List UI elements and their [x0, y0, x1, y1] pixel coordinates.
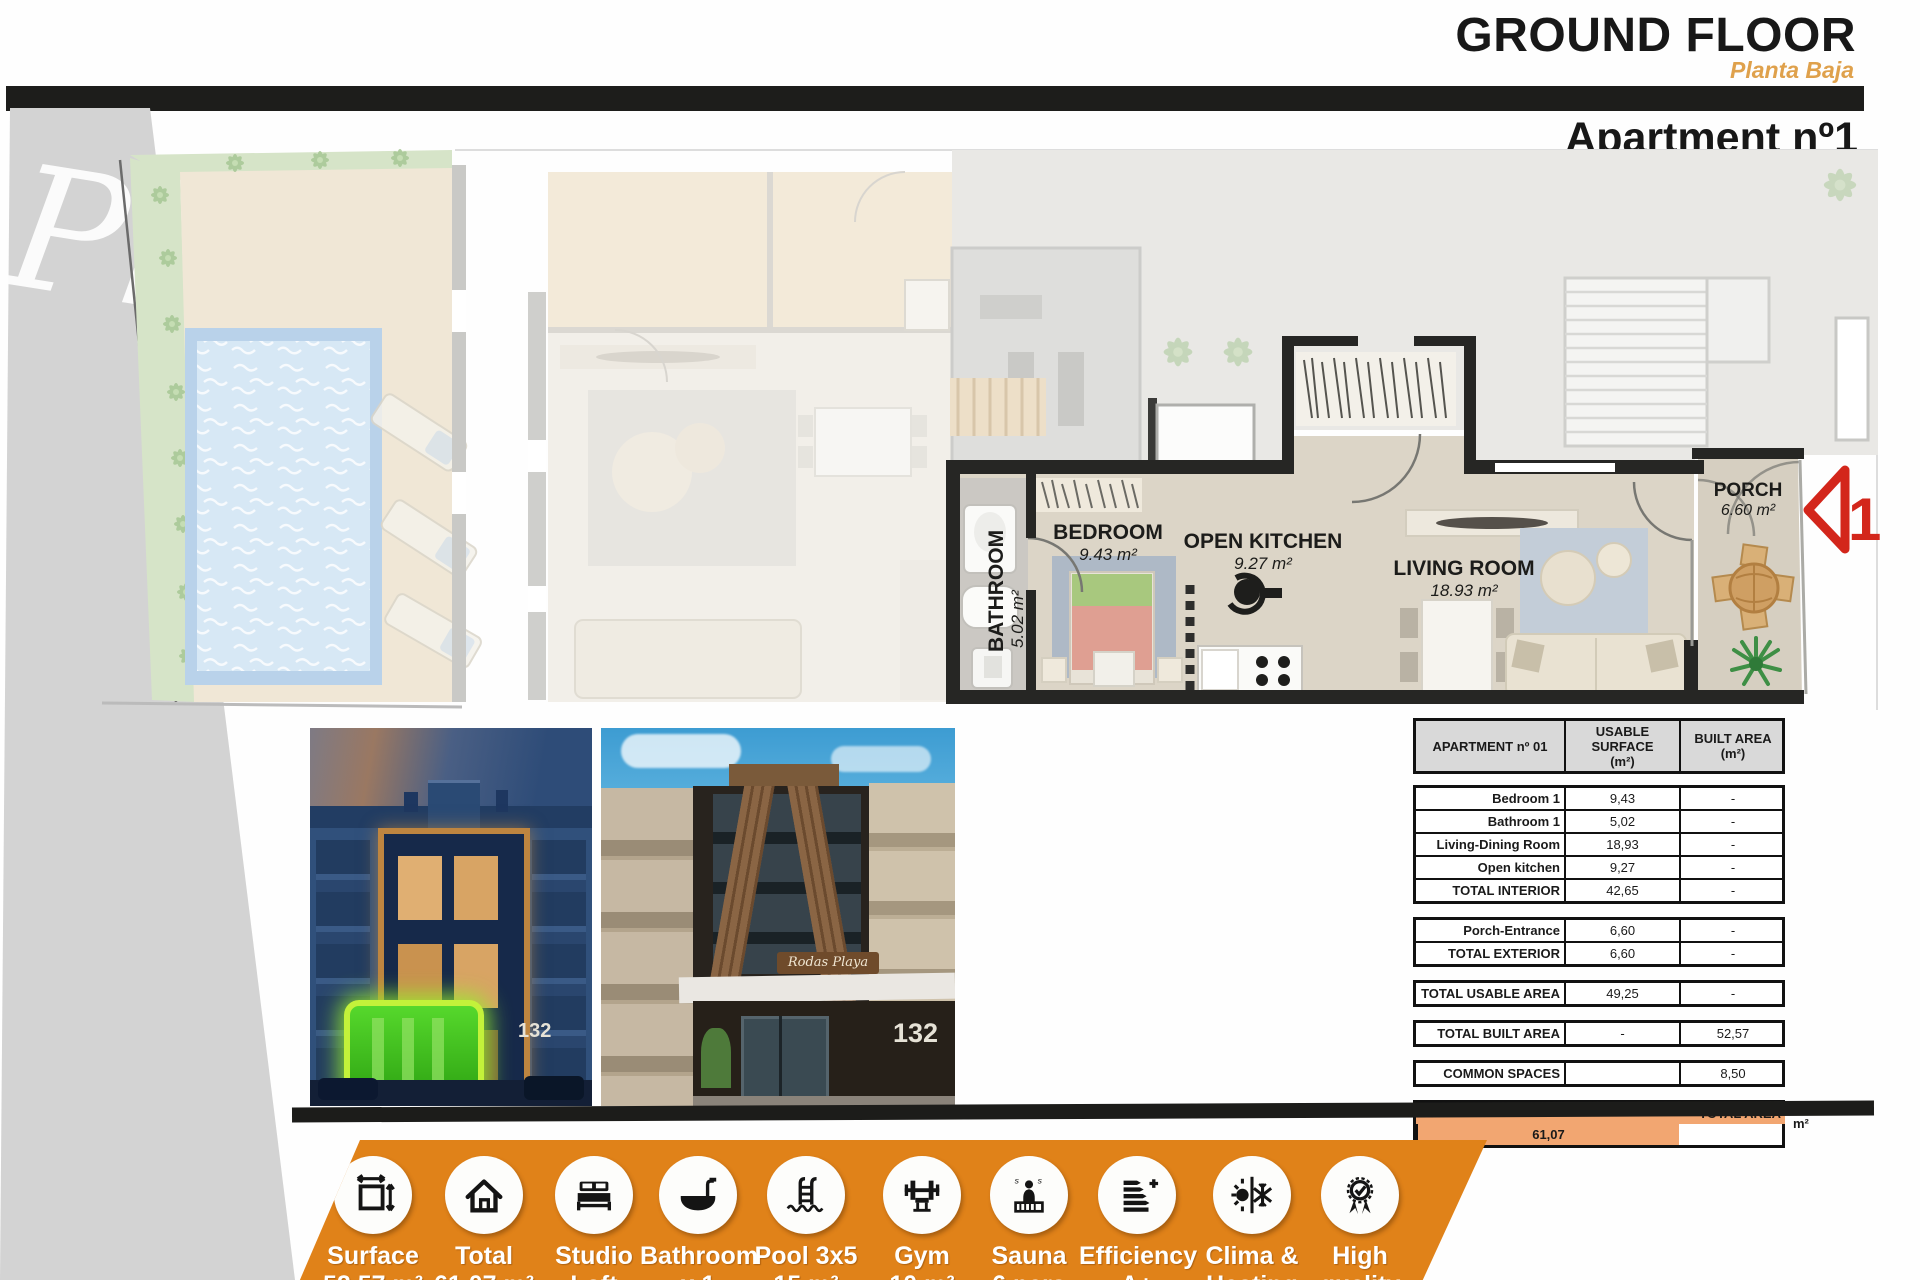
bed-icon [571, 1172, 617, 1218]
features-strip: Surface52,57 m² Total61,07 m² StudioLoft [295, 1140, 1495, 1280]
unit-1-number: 1 [1848, 486, 1881, 553]
feature-total: Total61,07 m² [426, 1140, 542, 1280]
house-icon [461, 1172, 507, 1218]
efficiency-icon [1114, 1172, 1160, 1218]
feature-gym: Gym10 m² [864, 1140, 980, 1280]
pool [185, 328, 382, 685]
unit-1-marker: 1 [1808, 470, 1881, 553]
bathtub-icon [675, 1172, 721, 1218]
sauna-icon: s s [1006, 1172, 1052, 1218]
col-built: BUILT AREA [1694, 731, 1771, 746]
open-kitchen-area: 9.27 m² [1234, 554, 1293, 573]
porch-label: PORCH [1714, 480, 1783, 501]
feature-bathroom: Bathroomx 1 [640, 1140, 756, 1280]
feature-efficiency: EfficiencyA+ [1079, 1140, 1195, 1280]
pool-ladder-icon [783, 1172, 829, 1218]
bathroom-area: 5.02 m² [1008, 589, 1027, 648]
living-room-label: LIVING ROOM [1393, 557, 1534, 580]
bedroom-area: 9.43 m² [1079, 545, 1138, 564]
clima-heating-icon [1229, 1172, 1275, 1218]
interior-rows: Bedroom 19,43- Bathroom 15,02- Living-Di… [1413, 785, 1785, 904]
feature-pool: Pool 3x515 m² [748, 1140, 864, 1280]
exterior-rows: Porch-Entrance6,60- TOTAL EXTERIOR6,60- [1413, 917, 1785, 967]
day-building-number: 132 [893, 1018, 938, 1049]
feature-quality: Highquality [1302, 1140, 1418, 1280]
brochure-page: GROUND FLOOR Planta Baja Apartment nº1 A… [0, 0, 1920, 1280]
plan-bottom-edge-line [102, 703, 462, 707]
col-apartment: APARTMENT nº 01 [1432, 739, 1547, 754]
areas-table: APARTMENT nº 01 USABLE SURFACE(m²) BUILT… [1413, 718, 1785, 1148]
common-spaces-row: COMMON SPACES8,50 [1413, 1060, 1785, 1087]
svg-text:s: s [1015, 1176, 1020, 1186]
living-room-area: 18.93 m² [1430, 581, 1498, 600]
svg-text:s: s [1038, 1176, 1043, 1186]
col-usable: USABLE SURFACE [1570, 724, 1675, 754]
building-sign: Rodas Playa [777, 952, 879, 974]
gym-icon [899, 1172, 945, 1218]
living-window [1495, 463, 1615, 472]
day-facade-photo: Rodas Playa 132 [601, 728, 955, 1106]
feature-sauna: s s Sauna6 pers [971, 1140, 1087, 1280]
surface-measure-icon [350, 1172, 396, 1218]
night-building-number: 132 [518, 1020, 551, 1043]
faded-neighbour-apartment [548, 172, 952, 702]
quality-medal-icon [1337, 1172, 1383, 1218]
total-usable-row: TOTAL USABLE AREA49,25- [1413, 980, 1785, 1007]
feature-clima: Clima &Heating [1194, 1140, 1310, 1280]
total-area-unit: m² [1793, 1116, 1809, 1131]
areas-table-header: APARTMENT nº 01 USABLE SURFACE(m²) BUILT… [1413, 718, 1785, 774]
open-kitchen-label: OPEN KITCHEN [1184, 530, 1343, 553]
total-built-row: TOTAL BUILT AREA-52,57 [1413, 1020, 1785, 1047]
porch-area: 6.60 m² [1721, 502, 1776, 519]
garden-wall [452, 165, 546, 702]
feature-studio: StudioLoft [536, 1140, 652, 1280]
bedroom-label: BEDROOM [1053, 521, 1163, 544]
night-facade-photo: 132 [310, 728, 592, 1106]
bathroom-label: BATHROOM [985, 530, 1008, 652]
